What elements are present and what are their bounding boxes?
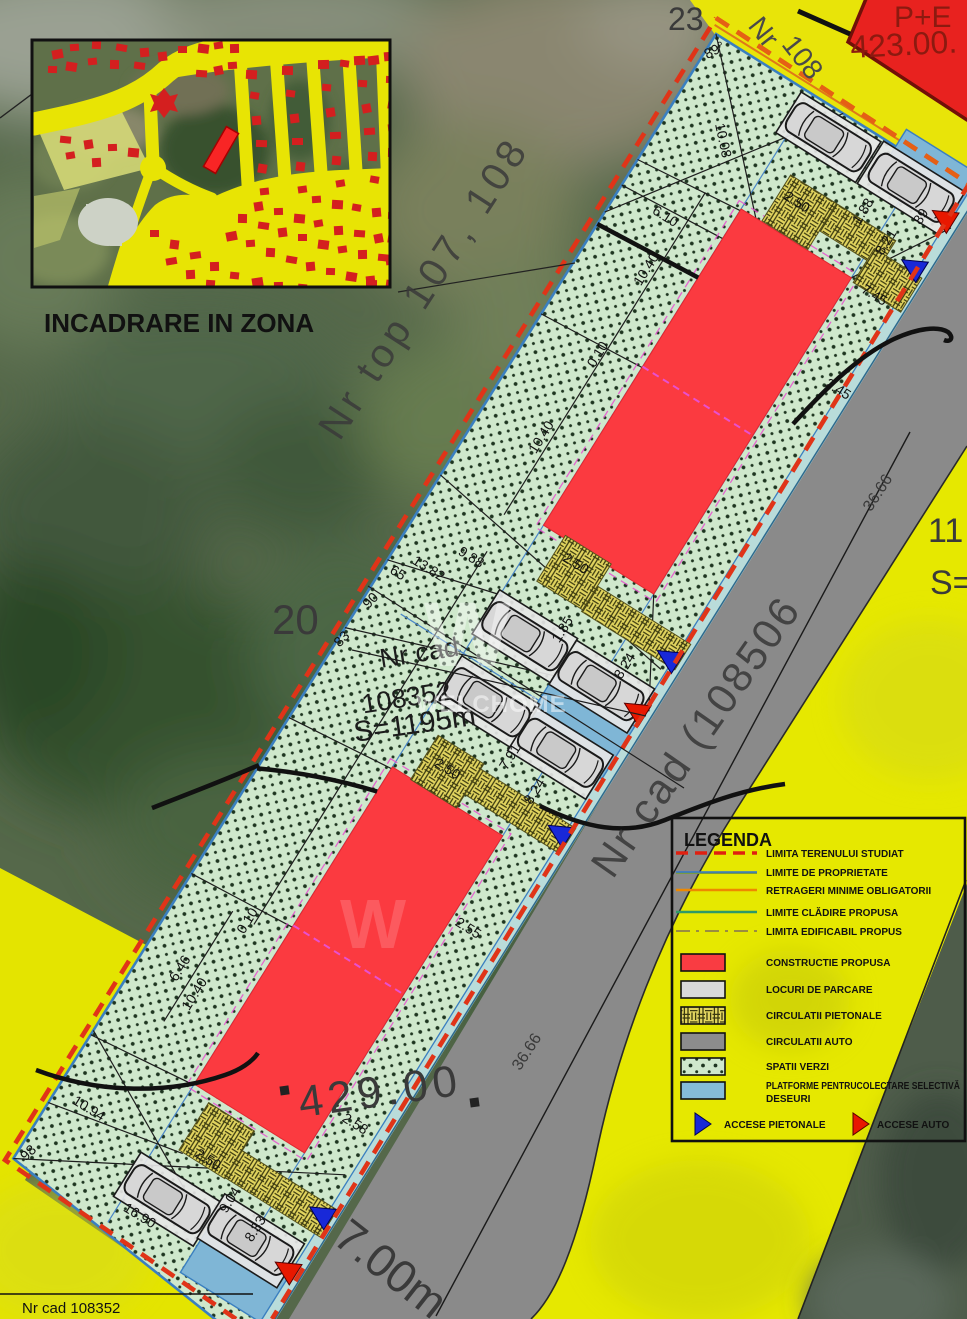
svg-text:RETRAGERI MINIME OBLIGATORII: RETRAGERI MINIME OBLIGATORII — [766, 886, 931, 897]
svg-text:Nr cad 108352: Nr cad 108352 — [22, 1300, 120, 1317]
svg-text:LIMITE CLĂDIRE PROPUSA: LIMITE CLĂDIRE PROPUSA — [766, 906, 898, 919]
svg-text:SPATII VERZI: SPATII VERZI — [766, 1062, 829, 1073]
svg-text:423.00.: 423.00. — [849, 23, 958, 65]
svg-text:WELCHOME: WELCHOME — [416, 691, 567, 718]
svg-text:ACCESE PIETONALE: ACCESE PIETONALE — [724, 1120, 826, 1131]
svg-text:LOCURI DE PARCARE: LOCURI DE PARCARE — [766, 985, 873, 996]
svg-text:CIRCULATII PIETONALE: CIRCULATII PIETONALE — [766, 1011, 882, 1022]
svg-text:11: 11 — [928, 512, 963, 550]
svg-text:23: 23 — [668, 1, 704, 37]
svg-text:PLATFORME PENTRUCOLECTARE SELE: PLATFORME PENTRUCOLECTARE SELECTIVĂ — [766, 1079, 960, 1092]
svg-text:CONSTRUCTIE PROPUSA: CONSTRUCTIE PROPUSA — [766, 958, 890, 969]
svg-text:INCADRARE IN ZONA: INCADRARE IN ZONA — [44, 308, 314, 338]
svg-text:S=: S= — [930, 564, 967, 602]
svg-text:CIRCULATII AUTO: CIRCULATII AUTO — [766, 1037, 853, 1048]
svg-text:ACCESE AUTO: ACCESE AUTO — [877, 1120, 949, 1131]
svg-text:LEGENDA: LEGENDA — [684, 830, 772, 850]
svg-text:20: 20 — [272, 596, 319, 643]
svg-text:LIMITA TERENULUI STUDIAT: LIMITA TERENULUI STUDIAT — [766, 849, 904, 860]
svg-text:W: W — [424, 584, 511, 686]
svg-text:DESEURI: DESEURI — [766, 1094, 811, 1105]
svg-text:LIMITE DE PROPRIETATE: LIMITE DE PROPRIETATE — [766, 868, 888, 879]
svg-text:W: W — [340, 885, 406, 963]
svg-text:LIMITA EDIFICABIL PROPUS: LIMITA EDIFICABIL PROPUS — [766, 927, 902, 938]
